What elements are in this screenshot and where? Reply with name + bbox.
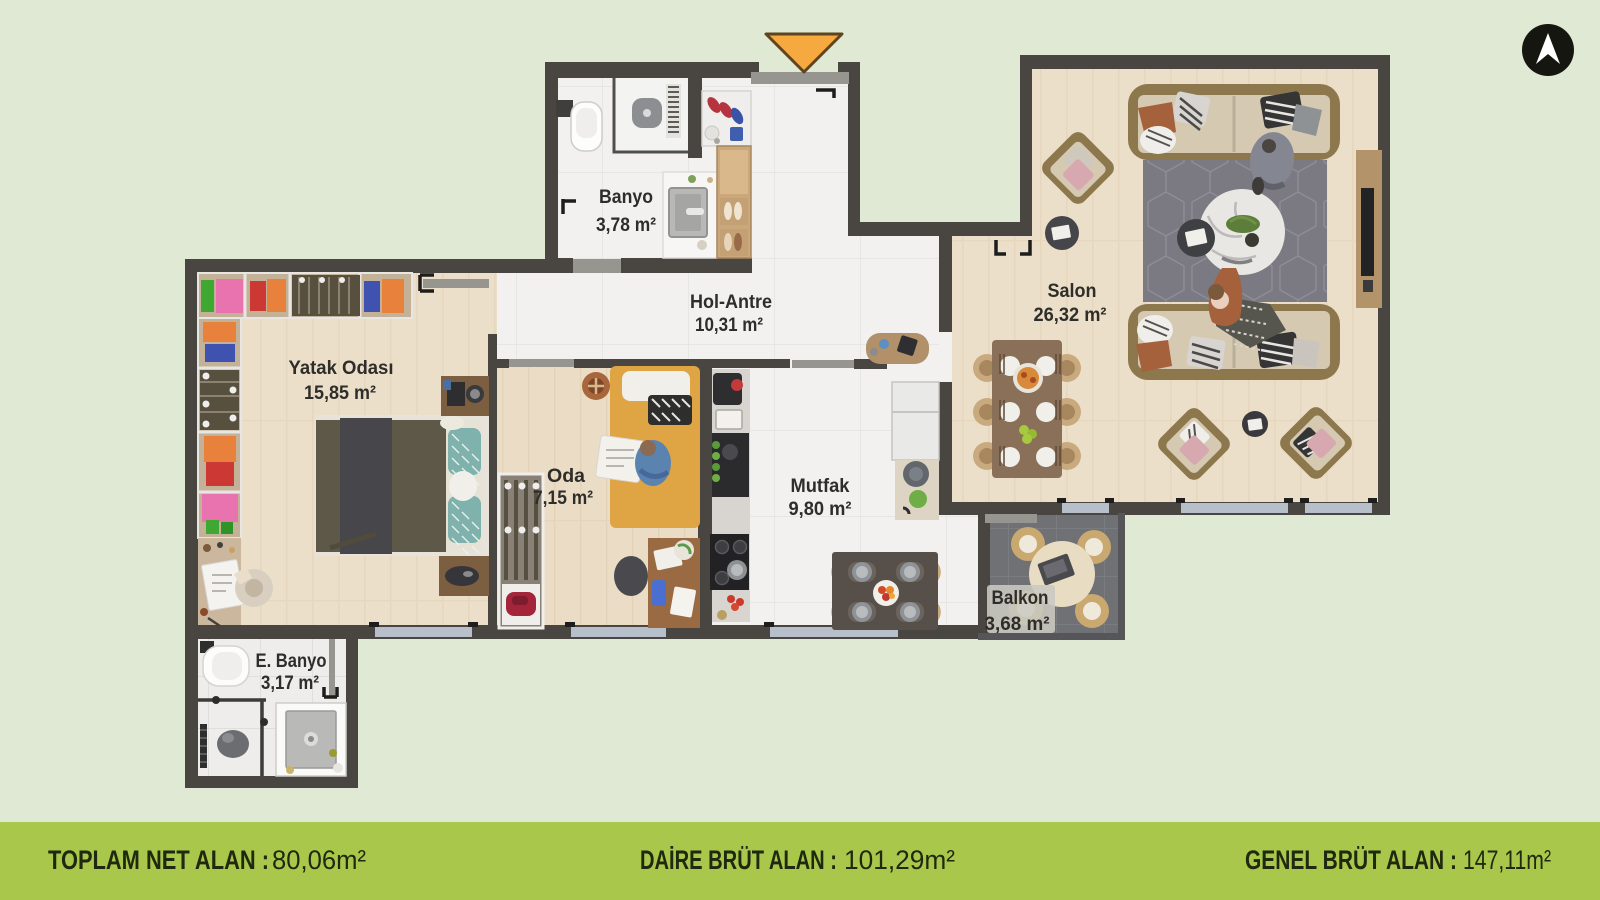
svg-text:Hol-Antre: Hol-Antre <box>690 292 772 313</box>
svg-text:80,06m²: 80,06m² <box>272 845 366 875</box>
svg-text:3,78 m²: 3,78 m² <box>596 215 656 236</box>
svg-text:7,15 m²: 7,15 m² <box>533 488 593 509</box>
svg-text:Salon: Salon <box>1048 281 1097 302</box>
svg-text:9,80 m²: 9,80 m² <box>789 499 852 520</box>
svg-text:Oda: Oda <box>547 466 585 487</box>
svg-text:15,85 m²: 15,85 m² <box>304 383 376 404</box>
svg-text:3,17 m²: 3,17 m² <box>261 673 319 694</box>
svg-text:3,68 m²: 3,68 m² <box>985 614 1050 635</box>
svg-text:10,31 m²: 10,31 m² <box>695 315 763 336</box>
svg-text:101,29m²: 101,29m² <box>844 845 955 875</box>
svg-text:Balkon: Balkon <box>992 588 1049 609</box>
svg-text:147,11m²: 147,11m² <box>1463 845 1551 875</box>
svg-text:DAİRE BRÜT ALAN :: DAİRE BRÜT ALAN : <box>640 845 837 875</box>
svg-text:Banyo: Banyo <box>599 187 653 208</box>
svg-text:GENEL BRÜT ALAN :: GENEL BRÜT ALAN : <box>1245 845 1457 875</box>
svg-text:TOPLAM NET ALAN :: TOPLAM NET ALAN : <box>48 845 269 875</box>
svg-text:E. Banyo: E. Banyo <box>256 651 327 672</box>
svg-text:Yatak Odası: Yatak Odası <box>289 358 394 379</box>
svg-text:Mutfak: Mutfak <box>791 476 850 497</box>
svg-text:26,32 m²: 26,32 m² <box>1034 305 1107 326</box>
